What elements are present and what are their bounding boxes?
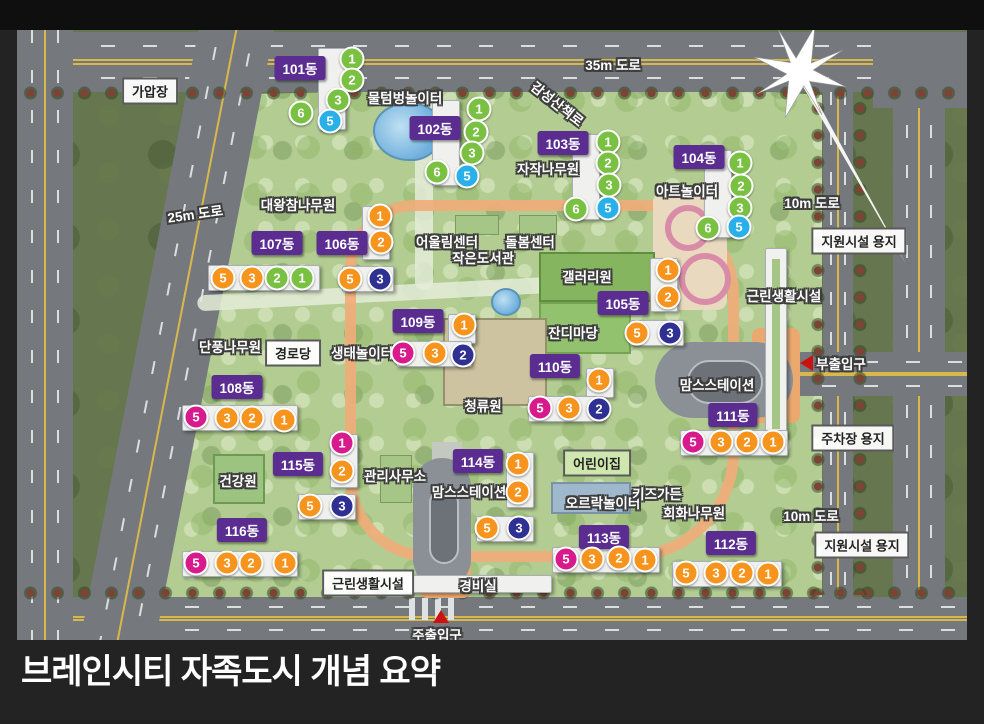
block-badge-111동: 111동 [708,403,757,427]
facility-label: 아트놀이터 [656,180,718,200]
unit-circle-102동-6: 6 [425,160,450,185]
facility-label: 관리사무소 [364,465,426,485]
block-badge-108동: 108동 [212,375,263,399]
block-badge-106동: 106동 [317,231,368,255]
unit-circle-113동-3: 3 [580,547,605,572]
boxed-label: 어린이집 [563,450,631,477]
unit-circle-110동-2: 2 [587,397,612,422]
unit-circle-115동-5: 5 [298,494,323,519]
site-plan-map: 101동12365102동12365103동12365104동12365107동… [17,30,967,640]
block-badge-110동: 110동 [530,354,580,378]
unit-circle-112동-2: 2 [730,561,755,586]
facility-label: 단풍나무원 [199,336,261,356]
unit-circle-116동-3: 3 [215,551,240,576]
unit-circle-106동-1: 1 [368,204,393,229]
unit-circle-113동-1: 1 [633,548,658,573]
top-black-bar [0,0,984,30]
unit-circle-111동-2: 2 [735,430,760,455]
road-far-left [17,30,73,640]
entrance-label-주출입구: 주출입구 [412,624,462,640]
unit-circle-102동-1: 1 [467,97,492,122]
unit-circle-102동-3: 3 [460,141,485,166]
road-label: 35m 도로 [585,54,641,74]
facility-label: 대왕참나무원 [261,194,336,214]
block-badge-101동: 101동 [275,56,326,80]
unit-circle-106동-5: 5 [338,267,363,292]
unit-circle-103동-6: 6 [564,197,589,222]
unit-circle-108동-3: 3 [215,406,240,431]
facility-label: 작은도서관 [452,247,514,267]
block-badge-114동: 114동 [453,449,503,473]
boxed-label: 지원시설 용지 [814,532,909,559]
screenshot-frame: 101동12365102동12365103동12365104동12365107동… [0,0,984,724]
unit-circle-109동-2: 2 [451,343,476,368]
boxed-label: 주차장 용지 [811,425,894,452]
facility-label: 근린생활시설 [747,285,822,305]
entrance-arrow-icon [800,355,813,371]
block-badge-103동: 103동 [538,131,589,155]
unit-circle-105동-3: 3 [658,321,683,346]
block-badge-105동: 105동 [598,291,649,315]
unit-circle-105동-1: 1 [656,258,681,283]
unit-circle-107동-5: 5 [211,266,236,291]
unit-circle-104동-1: 1 [728,151,753,176]
unit-circle-103동-3: 3 [597,173,622,198]
facility-label: 자작나무원 [517,158,579,178]
page-title: 브레인시티 자족도시 개념 요약 [21,644,440,693]
unit-circle-110동-1: 1 [587,368,612,393]
unit-circle-110동-3: 3 [557,396,582,421]
unit-circle-115동-2: 2 [330,459,355,484]
unit-circle-116동-5: 5 [184,551,209,576]
unit-circle-114동-2: 2 [506,480,531,505]
unit-circle-115동-1: 1 [330,431,355,456]
facility-label: 맘스스테이션 [680,374,755,394]
unit-circle-116동-2: 2 [239,551,264,576]
unit-circle-108동-5: 5 [184,405,209,430]
unit-circle-101동-6: 6 [289,101,314,126]
boxed-label: 근린생활시설 [322,570,414,597]
unit-circle-107동-1: 1 [290,266,315,291]
facility-label: 잔디마당 [548,322,598,342]
road-label: 10m 도로 [783,505,839,525]
unit-circle-108동-2: 2 [240,406,265,431]
unit-circle-109동-5: 5 [391,341,416,366]
unit-circle-114동-1: 1 [506,452,531,477]
unit-circle-101동-5: 5 [318,109,343,134]
road-label: 10m 도로 [784,192,840,212]
block-badge-109동: 109동 [393,309,444,333]
unit-circle-112동-5: 5 [674,561,699,586]
unit-circle-104동-5: 5 [727,215,752,240]
unit-circle-105동-2: 2 [656,285,681,310]
facility-label: 회화나무원 [663,502,725,522]
unit-circle-111동-3: 3 [709,430,734,455]
small-pond [491,288,521,316]
facility-label: 경비실 [459,575,496,595]
unit-circle-112동-3: 3 [704,561,729,586]
unit-circle-106동-2: 2 [369,230,394,255]
boxed-label: 경로당 [265,340,321,367]
block-badge-102동: 102동 [410,116,461,140]
unit-circle-115동-3: 3 [330,494,355,519]
unit-circle-114동-3: 3 [507,516,532,541]
unit-circle-113동-2: 2 [607,546,632,571]
unit-circle-114동-5: 5 [475,516,500,541]
unit-circle-106동-3: 3 [368,267,393,292]
unit-circle-109동-3: 3 [423,341,448,366]
unit-circle-105동-5: 5 [625,321,650,346]
unit-circle-107동-3: 3 [240,266,265,291]
facility-label: 맘스스테이션 [432,481,507,501]
facility-label: 키즈가든 [632,483,682,503]
entrance-label-부출입구: 부출입구 [816,353,866,373]
unit-circle-104동-6: 6 [696,216,721,241]
block-badge-112동: 112동 [706,531,756,555]
entrance-arrow-icon [433,610,449,623]
unit-circle-116동-1: 1 [273,551,298,576]
unit-circle-103동-5: 5 [596,196,621,221]
unit-circle-110동-5: 5 [528,396,553,421]
unit-circle-112동-1: 1 [756,562,781,587]
art-playground-ring-2 [679,253,731,305]
facility-label: 건강원 [219,470,256,490]
block-badge-104동: 104동 [674,145,725,169]
boxed-label: 가압장 [122,78,178,105]
block-badge-107동: 107동 [252,231,303,255]
facility-label: 갤러리원 [562,266,612,286]
block-badge-115동: 115동 [273,452,323,476]
block-badge-116동: 116동 [217,518,267,542]
unit-circle-109동-1: 1 [452,313,477,338]
unit-circle-111동-5: 5 [681,430,706,455]
unit-circle-111동-1: 1 [761,430,786,455]
unit-circle-102동-5: 5 [455,164,480,189]
unit-circle-108동-1: 1 [272,408,297,433]
facility-label: 물텀벙놀이터 [368,87,443,107]
facility-label: 오르락놀이터 [566,492,641,512]
unit-circle-107동-2: 2 [265,266,290,291]
facility-label: 청류원 [464,395,501,415]
boxed-label: 지원시설 용지 [811,228,906,255]
facility-label: 생태놀이터 [331,342,393,362]
unit-circle-113동-5: 5 [554,547,579,572]
